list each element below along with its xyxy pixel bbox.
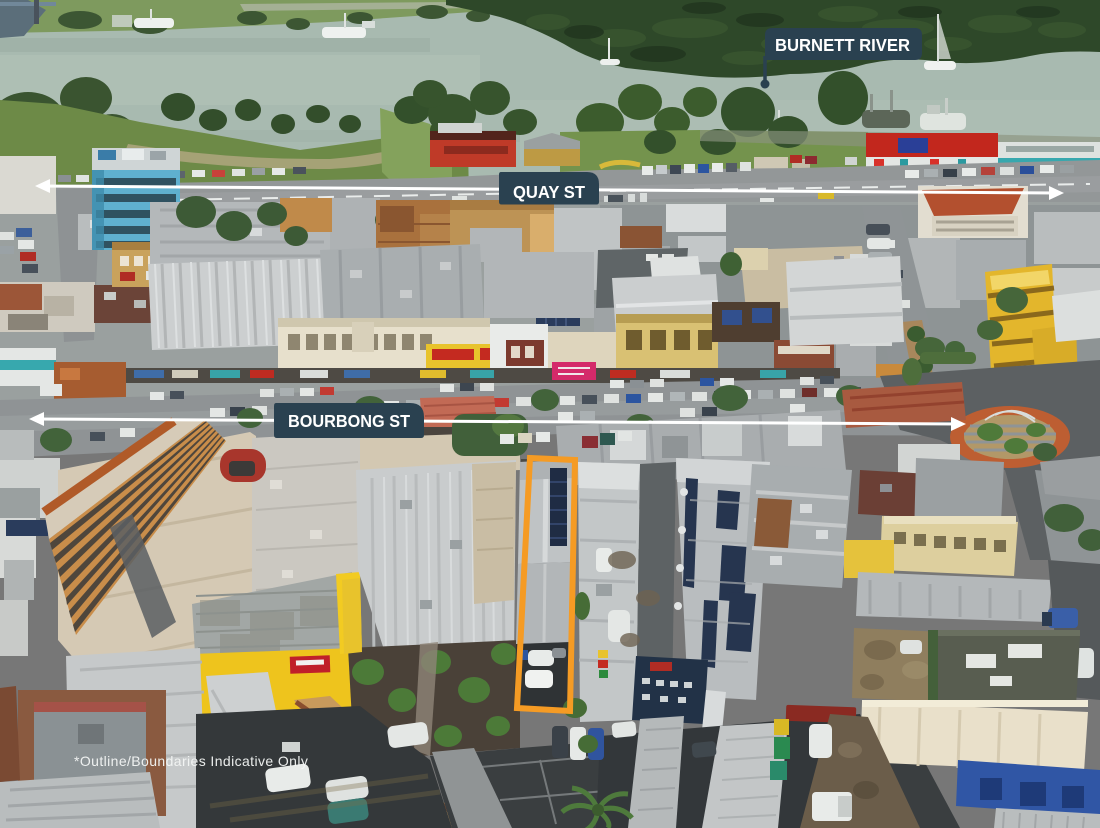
svg-text:*Outline/Boundaries Indicative: *Outline/Boundaries Indicative Only	[74, 753, 308, 769]
svg-text:BOURBONG ST: BOURBONG ST	[288, 411, 410, 431]
svg-text:BURNETT RIVER: BURNETT RIVER	[775, 35, 910, 55]
svg-text:QUAY ST: QUAY ST	[513, 182, 585, 202]
